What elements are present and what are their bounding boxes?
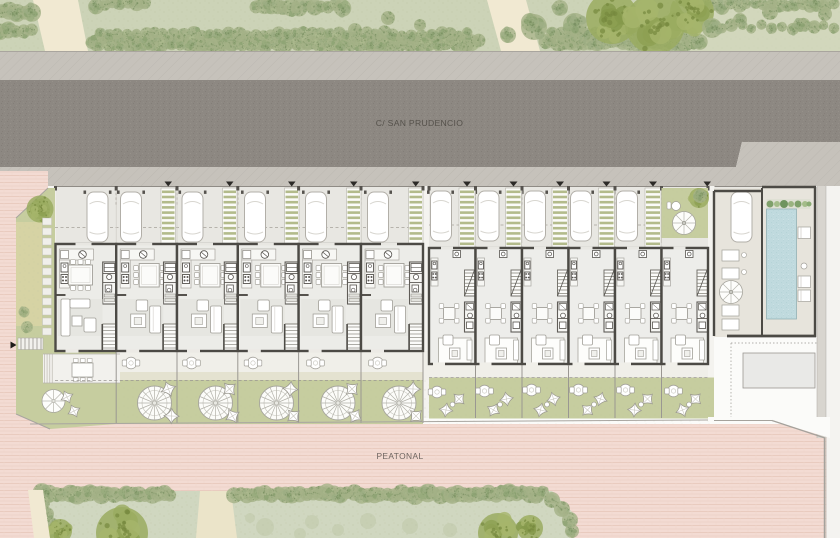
svg-text:C/ SAN PRUDENCIO: C/ SAN PRUDENCIO <box>376 118 463 128</box>
svg-text:PEATONAL: PEATONAL <box>376 451 423 461</box>
